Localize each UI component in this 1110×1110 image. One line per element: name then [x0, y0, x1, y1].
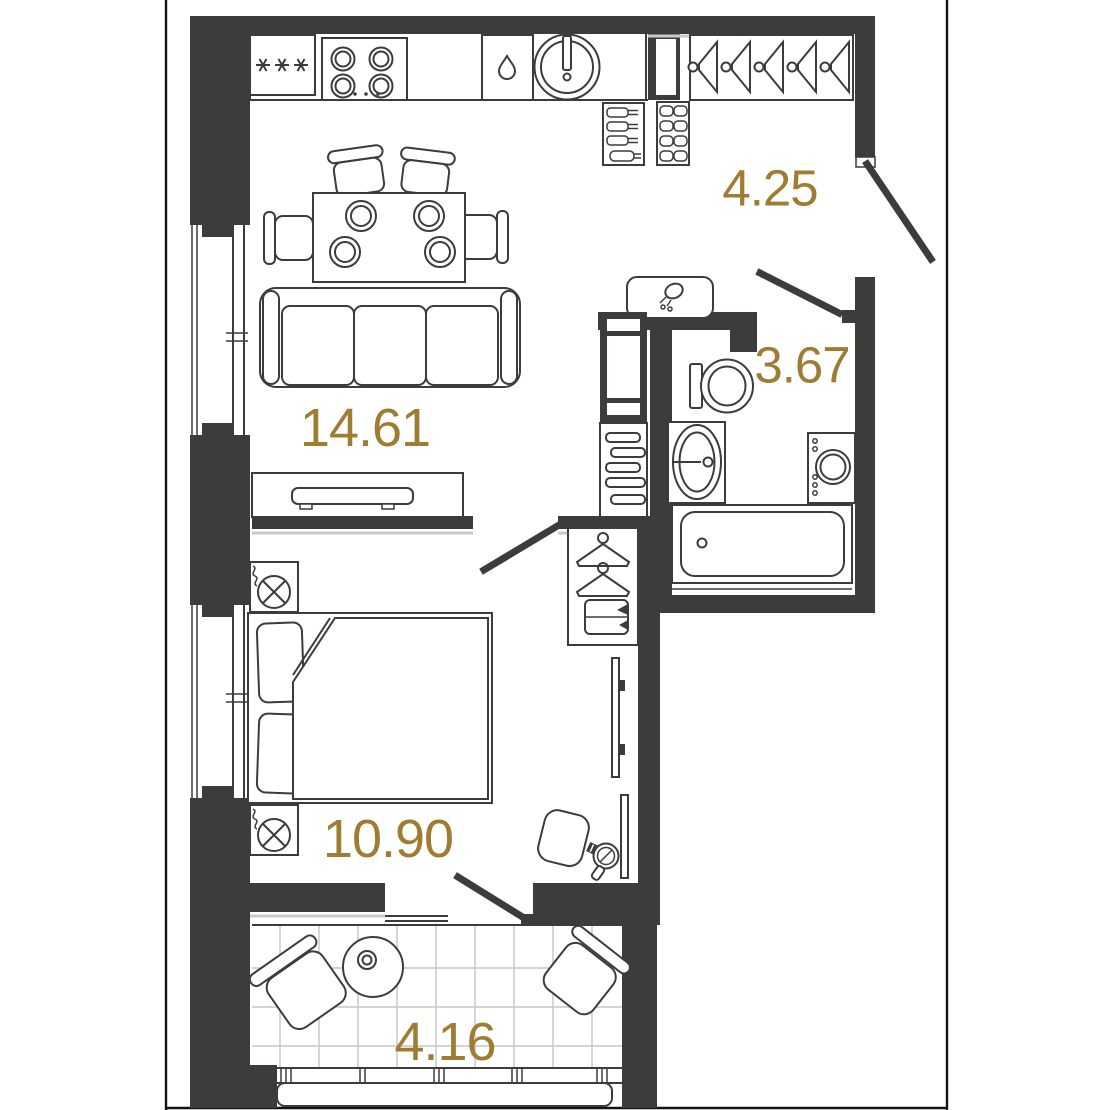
- vent-shaft-inset: [656, 39, 676, 95]
- cabinet-icon: [600, 312, 647, 422]
- hanger-closet-icon: [568, 528, 638, 645]
- balcony-door-leaf: [458, 877, 529, 921]
- area-label-balcony: 4.16: [394, 1011, 495, 1073]
- desk-chair-icon: [535, 807, 591, 868]
- entry-door-leaf: [867, 164, 931, 259]
- stove-icon: [322, 38, 407, 100]
- shoe-rack-icon: [657, 102, 689, 165]
- bedroom-window: [192, 605, 248, 798]
- washbasin-icon: [668, 422, 725, 503]
- tv-console-icon: [252, 473, 463, 517]
- floorplan-drawing: [0, 0, 1110, 1110]
- fridge-icon: [250, 35, 315, 95]
- area-label-bathroom: 3.67: [754, 336, 849, 395]
- dining-table-icon: [264, 144, 508, 282]
- water-heater-icon: [627, 277, 713, 318]
- nightstand-lamp-icon: [250, 562, 298, 612]
- desk-icon: [621, 795, 628, 878]
- balcony-table-icon: [343, 937, 403, 997]
- sofa-icon: [260, 288, 520, 387]
- floorplan-canvas: 14.61 4.25 3.67 10.90 4.16: [0, 0, 1110, 1110]
- balcony-parapet: [277, 1083, 612, 1106]
- wardrobe-hangers-icon: [689, 35, 854, 100]
- sink-icon: [535, 35, 600, 100]
- area-label-kitchen-living: 14.61: [300, 397, 430, 459]
- bathroom-door-leaf: [760, 273, 839, 313]
- balcony-block-window: [385, 916, 448, 921]
- bed-icon: [248, 613, 492, 803]
- area-label-hallway: 4.25: [722, 159, 817, 218]
- mirror-icon: [612, 658, 625, 777]
- bedroom-door-leaf: [484, 522, 564, 570]
- dishwasher-icon: [482, 35, 533, 100]
- balcony-chair-icon: [247, 933, 353, 1038]
- bathtub-icon: [672, 505, 852, 589]
- living-room-window: [192, 225, 248, 435]
- nightstand-lamp-icon: [250, 805, 298, 855]
- dining-chair-icon: [459, 211, 508, 263]
- dining-chair-icon: [264, 212, 313, 264]
- folded-clothes-icon: [585, 600, 628, 634]
- hand-mirror-icon: [591, 844, 619, 882]
- towel-ladder-icon: [600, 423, 647, 517]
- balcony-glazing: [277, 1068, 622, 1106]
- washing-machine-icon: [808, 433, 855, 503]
- area-label-bedroom: 10.90: [323, 808, 453, 870]
- toilet-icon: [690, 360, 753, 413]
- dining-chair-icon: [397, 147, 456, 197]
- wine-rack-icon: [603, 103, 644, 165]
- dining-chair-icon: [327, 144, 388, 197]
